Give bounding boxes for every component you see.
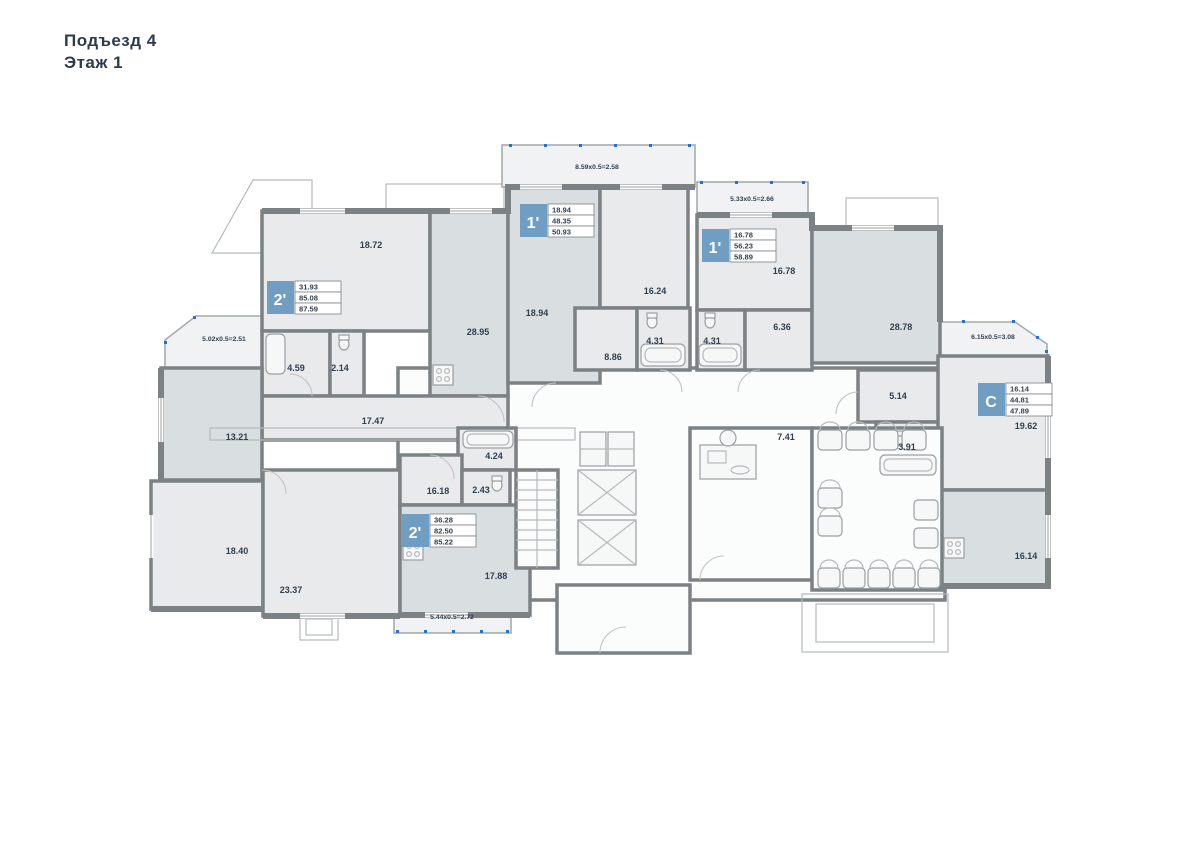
plan-title-entrance: Подъезд 4 bbox=[64, 30, 157, 52]
room-area-label: 13.21 bbox=[226, 432, 249, 442]
room-hall-1618 bbox=[400, 455, 462, 505]
stairs-icon bbox=[516, 470, 558, 568]
apartment-value: 36.28 bbox=[434, 516, 453, 525]
room-bedroom-1321 bbox=[161, 368, 262, 480]
apartment-value: 87.59 bbox=[299, 305, 318, 314]
room-area-label: 4.31 bbox=[703, 336, 721, 346]
room-kitchen-living-2878 bbox=[812, 228, 940, 363]
floorplan-drawing: 18.72 28.95 18.94 16.24 16.78 28.78 4.59… bbox=[0, 0, 1191, 843]
apartment-value: 82.50 bbox=[434, 527, 453, 536]
room-area-label: 4.31 bbox=[646, 336, 664, 346]
apartment-value: 31.93 bbox=[299, 283, 318, 292]
apartment-type: 1' bbox=[527, 215, 540, 232]
apartment-badge-1-top-right: 1' 16.78 56.23 58.89 bbox=[702, 229, 776, 262]
room-area-label: 3.91 bbox=[898, 442, 916, 452]
room-area-label: 5.14 bbox=[889, 391, 907, 401]
room-area-label: 19.62 bbox=[1015, 421, 1038, 431]
room-area-label: 2.14 bbox=[331, 363, 349, 373]
room-area-label: 28.78 bbox=[890, 322, 913, 332]
apartment-value: 16.14 bbox=[1010, 385, 1030, 394]
apartment-value: 85.08 bbox=[299, 294, 318, 303]
balcony-dim-label: 5.33x0.5=2.66 bbox=[730, 196, 774, 203]
apartment-value: 85.22 bbox=[434, 538, 453, 547]
room-area-label: 8.86 bbox=[604, 352, 622, 362]
room-area-label: 17.47 bbox=[362, 416, 385, 426]
entrance-vestibule bbox=[557, 585, 690, 653]
apartment-badge-studio: С 16.14 44.81 47.89 bbox=[978, 383, 1052, 416]
apartment-type: 1' bbox=[709, 240, 722, 257]
room-area-label: 2.43 bbox=[472, 485, 490, 495]
room-bedroom-1840 bbox=[151, 481, 263, 609]
apartment-badge-1-top-center: 1' 18.94 48.35 50.93 bbox=[520, 204, 594, 237]
apartment-value: 47.89 bbox=[1010, 407, 1029, 416]
balcony-dim-label: 8.59x0.5=2.58 bbox=[575, 164, 619, 171]
plan-title: Подъезд 4 Этаж 1 bbox=[64, 30, 157, 74]
room-area-label: 16.18 bbox=[427, 486, 450, 496]
room-area-label: 28.95 bbox=[467, 327, 490, 337]
terrace-grate-top-left-icon bbox=[386, 184, 504, 211]
plan-title-floor: Этаж 1 bbox=[64, 52, 157, 74]
room-area-label: 17.88 bbox=[485, 571, 508, 581]
room-area-label: 23.37 bbox=[280, 585, 303, 595]
apartment-type: 2' bbox=[409, 525, 422, 542]
apartment-value: 58.89 bbox=[734, 253, 753, 262]
terrace-grate-top-right-icon bbox=[846, 198, 938, 228]
room-area-label: 16.24 bbox=[644, 286, 667, 296]
apartment-value: 50.93 bbox=[552, 228, 571, 237]
apartment-type: С bbox=[985, 394, 997, 411]
room-area-label: 18.40 bbox=[226, 546, 249, 556]
room-area-label: 4.59 bbox=[287, 363, 305, 373]
floorplan-page: Подъезд 4 Этаж 1 bbox=[0, 0, 1191, 843]
room-area-label: 18.72 bbox=[360, 240, 383, 250]
balcony-dim-label: 6.15x0.5=3.08 bbox=[971, 334, 1015, 341]
room-area-label: 16.14 bbox=[1015, 551, 1038, 561]
room-hall-636 bbox=[745, 310, 812, 370]
balcony-dim-label: 5.02x0.5=2.51 bbox=[202, 336, 246, 343]
apartment-badge-2-bottom: 2' 36.28 82.50 85.22 bbox=[402, 514, 476, 547]
apartment-value: 16.78 bbox=[734, 231, 753, 240]
apartment-value: 44.81 bbox=[1010, 396, 1030, 405]
room-area-label: 7.41 bbox=[777, 432, 795, 442]
room-area-label: 6.36 bbox=[773, 322, 791, 332]
apartment-value: 48.35 bbox=[552, 217, 572, 226]
balcony-dim-label: 5.44x0.5=2.72 bbox=[430, 614, 474, 621]
room-area-label: 4.24 bbox=[485, 451, 503, 461]
apartment-type: 2' bbox=[274, 292, 287, 309]
apartment-value: 56.23 bbox=[734, 242, 753, 251]
apartment-value: 18.94 bbox=[552, 206, 572, 215]
entrance-steps-icon bbox=[802, 594, 948, 652]
apartment-badge-2-top-left: 2' 31.93 85.08 87.59 bbox=[267, 281, 341, 314]
room-area-label: 16.78 bbox=[773, 266, 796, 276]
room-area-label: 18.94 bbox=[526, 308, 549, 318]
